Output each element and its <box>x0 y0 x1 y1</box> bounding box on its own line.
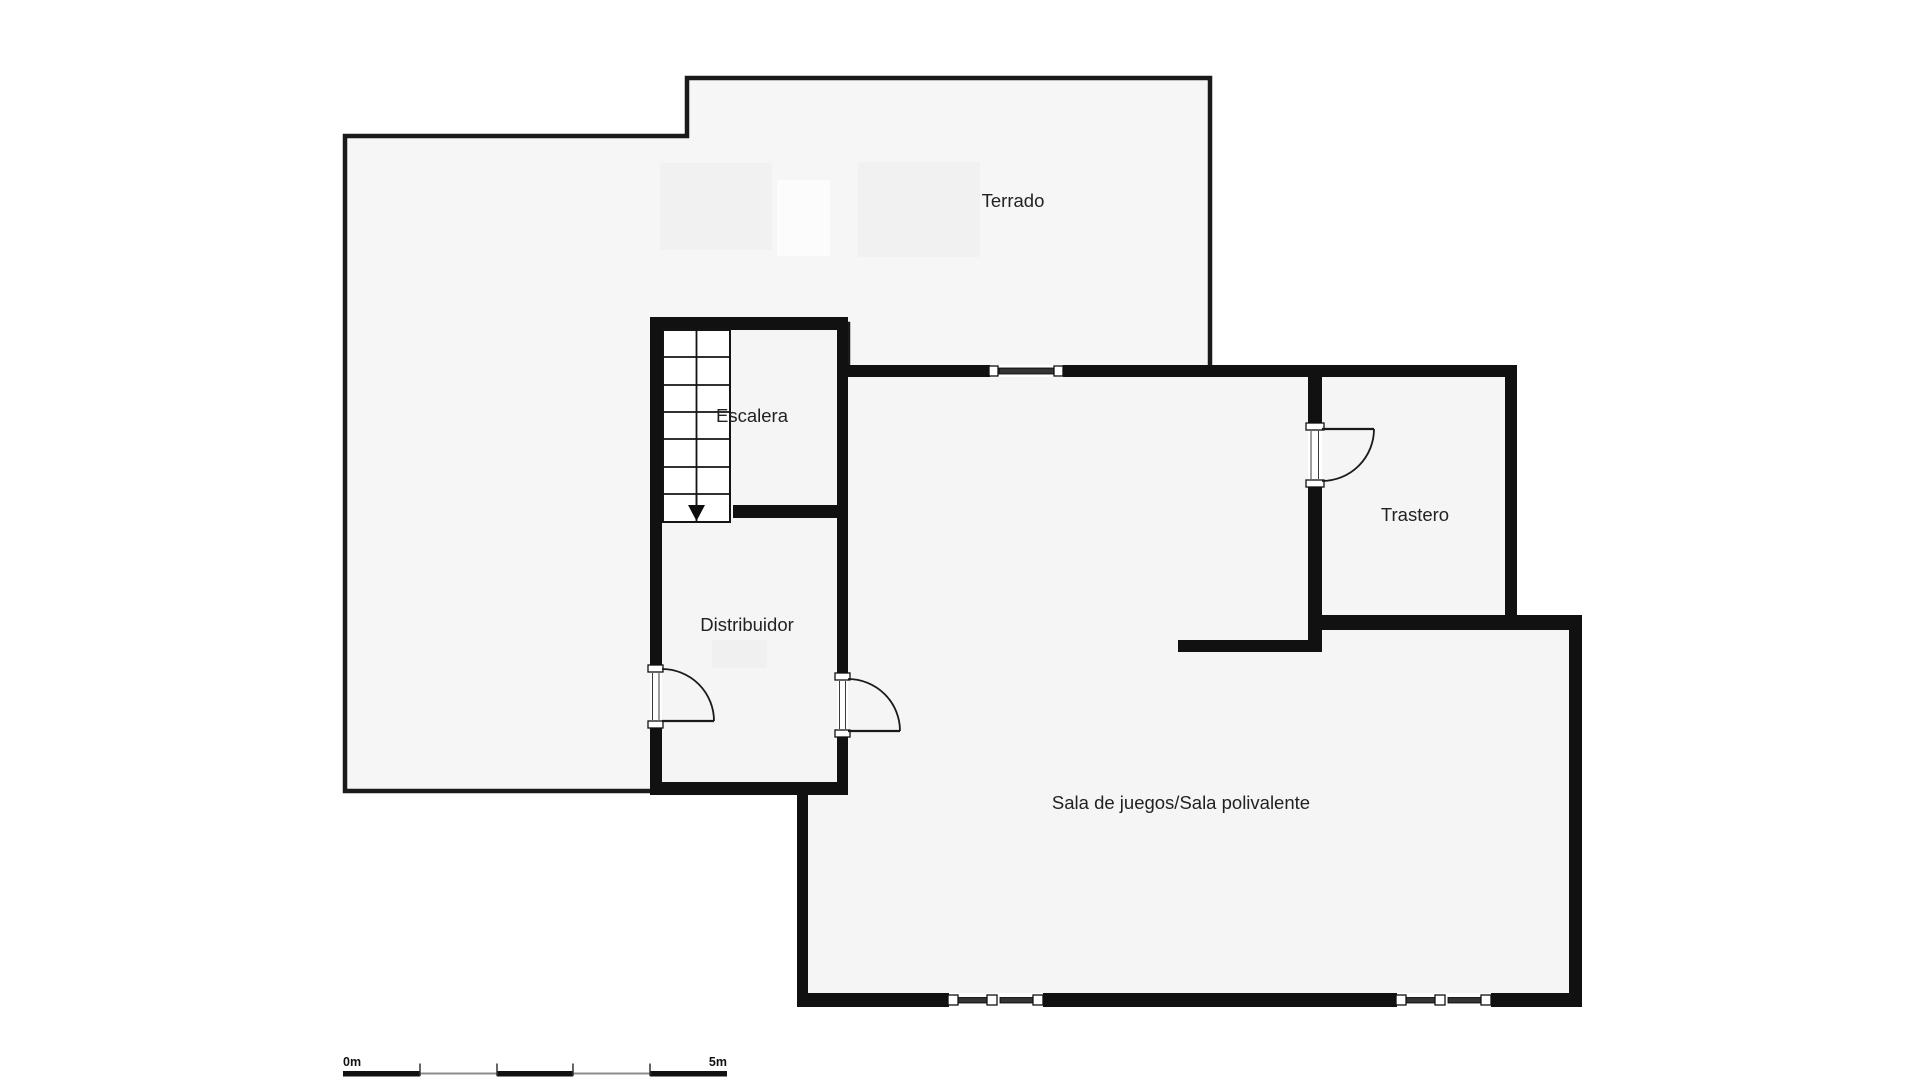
room-label-trastero: Trastero <box>1381 504 1449 525</box>
wall-segment <box>650 317 848 330</box>
wall-segment <box>1308 377 1322 423</box>
floor-plan-svg: Terrado Escalera Distribuidor Trastero S… <box>0 0 1920 1080</box>
stairs <box>663 330 730 522</box>
wall-segment <box>650 782 848 795</box>
room-label-sala: Sala de juegos/Sala polivalente <box>1052 792 1310 813</box>
wall-segment <box>797 795 808 1007</box>
window-frame-end <box>989 366 998 376</box>
wall-segment <box>1043 993 1397 1007</box>
scale-bar-segment <box>650 1071 727 1077</box>
window-frame-end <box>948 995 958 1005</box>
sala-floor-right <box>1505 627 1569 993</box>
wall-segment <box>837 365 990 377</box>
wall-segment <box>1569 615 1582 1007</box>
wall-segment <box>1308 487 1322 652</box>
wall-segment <box>797 993 949 1007</box>
sala-floor-main <box>848 377 1517 993</box>
terrace-furniture <box>660 163 772 250</box>
distribuidor-furniture <box>712 640 767 668</box>
door-frame-end <box>1306 423 1324 430</box>
door-frame-end <box>1306 480 1324 487</box>
room-label-distribuidor: Distribuidor <box>700 614 794 635</box>
terrace-furniture <box>858 162 980 257</box>
wall-segment <box>1505 377 1517 627</box>
terrace-furniture <box>777 180 830 256</box>
room-label-escalera: Escalera <box>716 405 789 426</box>
window-frame-end <box>1396 995 1406 1005</box>
door-opening <box>1308 423 1322 487</box>
wall-segment <box>1322 615 1582 630</box>
door-frame-end <box>835 730 850 737</box>
window-glazing <box>1000 998 1034 1004</box>
scale-bar-segment <box>343 1071 420 1077</box>
door-opening <box>650 665 662 728</box>
door-opening <box>837 673 848 737</box>
floor-plan: Terrado Escalera Distribuidor Trastero S… <box>0 0 1920 1080</box>
window-frame-end <box>1033 995 1043 1005</box>
window-glazing <box>1448 998 1482 1004</box>
door-frame-end <box>648 665 663 672</box>
wall-segment <box>1178 640 1322 652</box>
window-glazing <box>999 368 1056 374</box>
window-terrace <box>989 365 1063 377</box>
scale-bar-segment <box>497 1071 573 1077</box>
window-frame-mid <box>987 995 997 1005</box>
window-sala-south-west <box>948 993 1043 1007</box>
sala-floor-left <box>808 795 848 993</box>
scale-start-label: 0m <box>343 1055 361 1069</box>
door-frame-end <box>835 673 850 680</box>
wall-segment <box>1063 365 1517 377</box>
window-sala-south-east <box>1396 993 1491 1007</box>
window-frame-mid <box>1435 995 1445 1005</box>
door-frame-end <box>648 721 663 728</box>
scale-bar: 0m 5m <box>343 1055 727 1077</box>
wall-segment <box>733 505 848 518</box>
wall-segment <box>1491 993 1582 1007</box>
window-frame-end <box>1054 366 1063 376</box>
wall-segment <box>650 317 662 665</box>
scale-end-label: 5m <box>709 1055 727 1069</box>
window-frame-end <box>1481 995 1491 1005</box>
room-label-terrado: Terrado <box>982 190 1045 211</box>
